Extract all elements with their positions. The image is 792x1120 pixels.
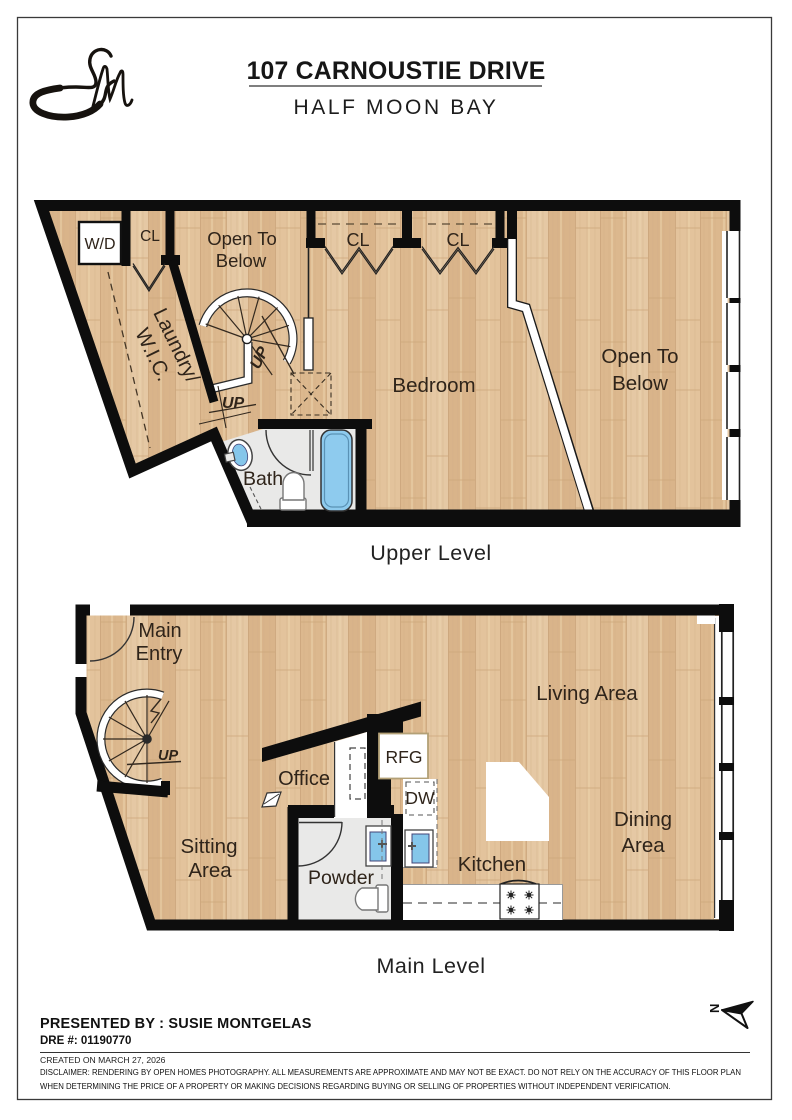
svg-text:Bedroom: Bedroom bbox=[392, 374, 475, 397]
svg-text:N: N bbox=[707, 1004, 722, 1013]
svg-text:DISCLAIMER: RENDERING BY OPEN: DISCLAIMER: RENDERING BY OPEN HOMES PHOT… bbox=[40, 1068, 741, 1077]
svg-text:Main Level: Main Level bbox=[377, 954, 486, 978]
svg-text:Office: Office bbox=[278, 768, 330, 790]
svg-text:W/D: W/D bbox=[84, 236, 115, 253]
svg-text:Kitchen: Kitchen bbox=[458, 853, 526, 876]
svg-text:Open To: Open To bbox=[207, 228, 277, 249]
svg-text:DW: DW bbox=[405, 788, 435, 808]
svg-text:Area: Area bbox=[188, 859, 232, 882]
svg-text:Sitting: Sitting bbox=[181, 835, 238, 858]
svg-text:DRE #: 01190770: DRE #: 01190770 bbox=[40, 1035, 131, 1047]
svg-text:Open To: Open To bbox=[601, 345, 678, 368]
svg-text:HALF MOON BAY: HALF MOON BAY bbox=[294, 96, 499, 119]
svg-text:CL: CL bbox=[346, 230, 369, 250]
svg-text:PRESENTED BY : SUSIE MONTGELAS: PRESENTED BY : SUSIE MONTGELAS bbox=[40, 1016, 312, 1032]
svg-text:RFG: RFG bbox=[386, 747, 423, 767]
svg-text:Main: Main bbox=[138, 620, 181, 642]
svg-text:Bath: Bath bbox=[243, 468, 283, 490]
svg-text:Below: Below bbox=[612, 372, 668, 395]
svg-text:CL: CL bbox=[140, 228, 160, 245]
svg-text:Living Area: Living Area bbox=[536, 682, 638, 705]
svg-text:Upper Level: Upper Level bbox=[370, 541, 491, 565]
svg-text:Dining: Dining bbox=[614, 808, 672, 831]
svg-text:Powder: Powder bbox=[308, 867, 375, 889]
svg-text:Below: Below bbox=[216, 250, 267, 271]
svg-text:Area: Area bbox=[621, 834, 665, 857]
svg-text:WHEN DETERMINING THE PRICE OF: WHEN DETERMINING THE PRICE OF A PROPERTY… bbox=[40, 1082, 671, 1091]
svg-text:107 CARNOUSTIE DRIVE: 107 CARNOUSTIE DRIVE bbox=[247, 58, 546, 85]
svg-text:CREATED ON MARCH 27, 2026: CREATED ON MARCH 27, 2026 bbox=[40, 1055, 166, 1065]
svg-text:Entry: Entry bbox=[136, 643, 183, 665]
